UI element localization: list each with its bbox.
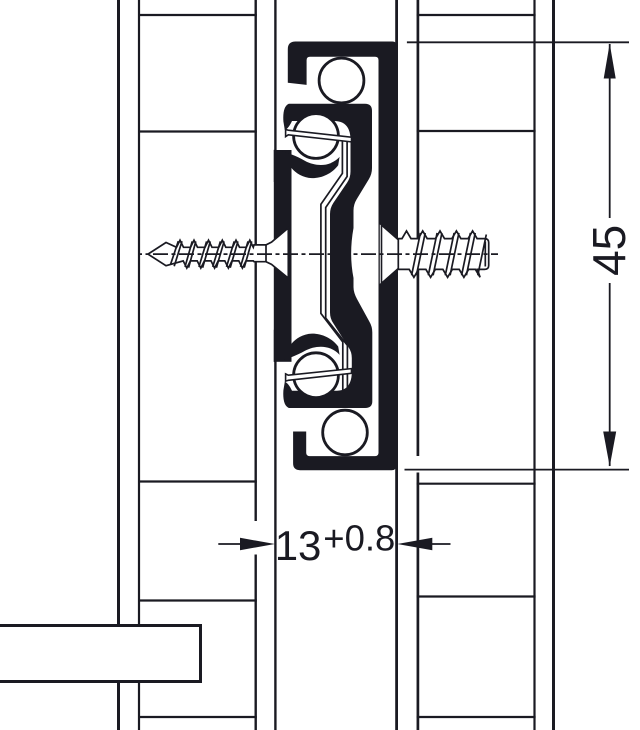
svg-text:+0.8: +0.8 — [323, 518, 395, 559]
svg-text:13: 13 — [275, 522, 322, 569]
svg-text:45: 45 — [583, 225, 635, 276]
